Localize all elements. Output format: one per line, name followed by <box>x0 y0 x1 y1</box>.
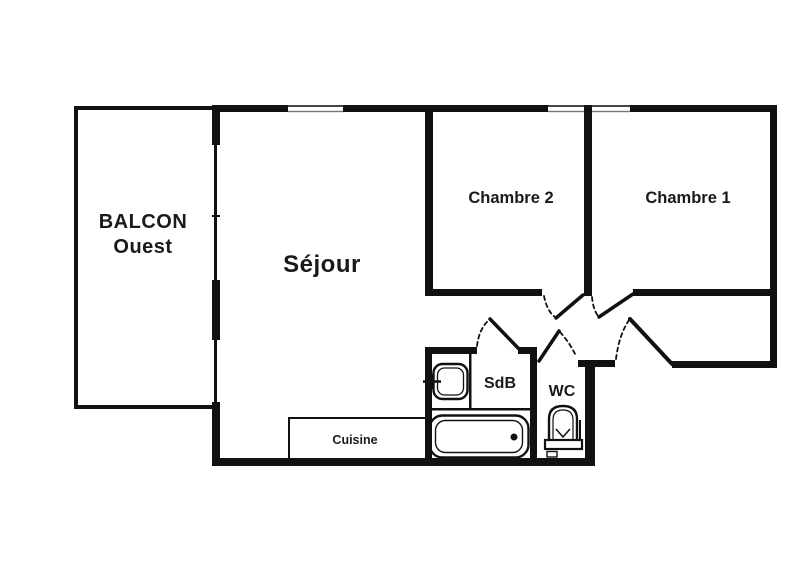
bathtub-icon <box>430 416 529 458</box>
door-entrance-arc <box>616 320 629 359</box>
wall-wc-right <box>585 360 595 466</box>
window-sejour-west-a <box>214 145 217 280</box>
sdb-inner-partition-h <box>428 408 531 411</box>
label-sdb: SdB <box>484 375 516 392</box>
wall-wc-stub <box>578 360 615 367</box>
wall-chambre2-bottom <box>425 289 542 296</box>
window-sejour-west-b <box>214 340 217 402</box>
wall-right <box>770 105 777 368</box>
window-sejour-north <box>288 105 343 114</box>
toilet-icon <box>545 406 582 457</box>
door-chambre1-leaf <box>599 294 633 317</box>
label-cuisine: Cuisine <box>332 433 377 447</box>
kitchen-counter-top <box>288 417 425 419</box>
partitions <box>288 354 531 458</box>
door-wc-leaf <box>539 331 559 361</box>
wall-bottom <box>212 458 595 466</box>
wall-chambre1-bottom <box>633 289 777 296</box>
window-sill-tick <box>212 215 220 217</box>
door-wc-arc <box>560 332 576 356</box>
wall-sejour-left-c <box>212 402 220 466</box>
window-chambre2 <box>548 105 584 114</box>
wall-sdb-right <box>530 347 537 458</box>
door-chambre1-arc <box>592 297 598 316</box>
label-chambre2: Chambre 2 <box>468 189 553 207</box>
floor-plan-drawing: BALCON Ouest Séjour Chambre 2 Chambre 1 … <box>0 0 800 570</box>
door-sdb-arc <box>477 320 489 346</box>
window-chambre1 <box>592 105 630 114</box>
door-chambre2-leaf <box>556 295 583 318</box>
floor-plan-canvas: BALCON Ouest Séjour Chambre 2 Chambre 1 … <box>0 0 800 570</box>
wall-balcony-bottom <box>74 405 216 409</box>
wall-sejour-left-a <box>212 105 220 145</box>
label-balcon-line1: BALCON <box>99 211 188 233</box>
wall-chambre-divider <box>584 105 592 296</box>
door-sdb-leaf <box>490 319 519 349</box>
wall-balcony-top <box>74 106 214 110</box>
wall-balcony-left <box>74 106 78 409</box>
label-sejour: Séjour <box>283 251 361 278</box>
wall-hall-bottom <box>672 361 777 368</box>
label-chambre1: Chambre 1 <box>645 189 730 207</box>
walls <box>74 105 777 466</box>
wall-sejour-left-b <box>212 280 220 340</box>
wall-sdb-top-a <box>425 347 477 354</box>
door-entrance-leaf <box>630 319 672 364</box>
label-balcon-line2: Ouest <box>113 236 172 258</box>
doors <box>477 294 672 364</box>
sdb-inner-partition-v <box>469 354 472 409</box>
wall-chambre2-left <box>425 105 433 296</box>
label-wc: WC <box>549 383 576 400</box>
door-chambre2-arc <box>544 296 555 317</box>
kitchen-counter-left <box>288 417 290 458</box>
